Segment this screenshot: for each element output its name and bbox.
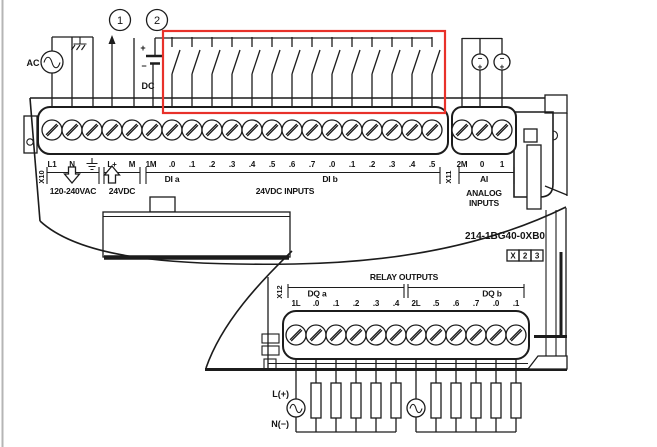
terminal-label: .3: [389, 160, 396, 169]
input-switch: [292, 37, 300, 107]
screw-terminal: [162, 120, 182, 140]
terminal-label: 1L: [292, 299, 301, 308]
up-arrow-icon: [109, 35, 116, 44]
relay-terminal-labels: 1L .0 .1 .2 .3 .4 2L .5 .6 .7 .0 .1: [292, 299, 520, 308]
terminal-label: .1: [189, 160, 196, 169]
neutral-supply-label: N(−): [271, 419, 289, 429]
terminal-label: .7: [473, 299, 480, 308]
sensor-caption: 24VDC: [109, 186, 135, 196]
terminal-label: .6: [453, 299, 460, 308]
input-switch: [232, 37, 240, 107]
inputs-caption: 24VDC INPUTS: [256, 186, 315, 196]
line-supply-label: L(+): [272, 389, 289, 399]
terminal-label: 2L: [412, 299, 421, 308]
screw-terminal: [306, 325, 326, 345]
terminal-label: 2M: [457, 160, 468, 169]
ac-label: AC: [27, 58, 40, 68]
terminal-label: .2: [209, 160, 216, 169]
screw-terminal: [202, 120, 222, 140]
terminal-label: .0: [493, 299, 500, 308]
screw-terminal: [182, 120, 202, 140]
screw-terminal: [446, 325, 466, 345]
order-code-box: X: [510, 252, 516, 261]
left-mount-ear: [24, 116, 37, 153]
screw-terminal: [486, 325, 506, 345]
screw-terminal: [62, 120, 82, 140]
connector-x11-label: X11: [444, 171, 453, 184]
terminal-label: .0: [329, 160, 336, 169]
input-switch: [212, 37, 220, 107]
screw-terminal: [262, 120, 282, 140]
dc-minus-label: −: [141, 61, 146, 71]
terminal-label: 1: [500, 160, 505, 169]
order-code-box: 3: [535, 252, 540, 261]
screw-terminal: [402, 120, 422, 140]
mains-supply-circuit: AC: [27, 37, 94, 107]
order-code-box: 2: [523, 252, 528, 261]
main-terminal-labels: L1 N L+ M 1M .0 .1 .2 .3 .4 .5 .6 .7 .0 …: [48, 158, 436, 170]
input-switch: [352, 37, 360, 107]
screw-terminal: [82, 120, 102, 140]
terminal-label: .1: [349, 160, 356, 169]
earth-ground-icon: [72, 37, 87, 50]
terminal-label: .3: [373, 299, 380, 308]
terminal-group-captions: X10 120-240VAC 24VDC DI a DI b 24VDC INP…: [37, 166, 514, 208]
terminal-label: .2: [369, 160, 376, 169]
screw-terminal: [452, 120, 472, 140]
terminal-label: .5: [433, 299, 440, 308]
screw-terminal: [506, 325, 526, 345]
left-ear-pin: [27, 139, 33, 145]
analog-caption-line2: INPUTS: [469, 198, 500, 208]
terminal-label: .6: [289, 160, 296, 169]
terminal-label: .4: [393, 299, 400, 308]
di-a-label: DI a: [165, 174, 180, 184]
right-foot: [528, 356, 567, 369]
terminal-label: 1M: [146, 160, 157, 169]
input-switch: [412, 37, 420, 107]
terminal-label: M: [129, 160, 136, 169]
terminal-label: .4: [409, 160, 416, 169]
analog-source-circuit: − + − +: [462, 38, 510, 107]
screw-terminal: [366, 325, 386, 345]
terminal-label: .0: [313, 299, 320, 308]
screw-terminal: [302, 120, 322, 140]
dc-source-circuit: + − DC: [140, 38, 432, 107]
terminal-label: .7: [309, 160, 316, 169]
part-number-area: 214-1BG40-0XB0 X 2 3: [465, 231, 545, 261]
screw-terminal: [362, 120, 382, 140]
mains-caption: 120-240VAC: [50, 186, 97, 196]
analog-terminal-labels: 2M 0 1: [457, 160, 505, 169]
screw-terminal: [386, 325, 406, 345]
screw-terminal: [382, 120, 402, 140]
screw-terminal: [42, 120, 62, 140]
screw-terminal: [426, 325, 446, 345]
relay-title: RELAY OUTPUTS: [370, 272, 439, 282]
ai-label: AI: [480, 174, 488, 184]
input-switch: [252, 37, 260, 107]
svg-text:2: 2: [154, 15, 160, 27]
screw-terminal: [282, 120, 302, 140]
terminal-label: .1: [513, 299, 520, 308]
dc-plus-label: +: [140, 43, 145, 53]
terminal-label: .1: [333, 299, 340, 308]
input-switch: [332, 37, 340, 107]
screw-terminal: [242, 120, 262, 140]
input-switch: [312, 37, 320, 107]
connector-x12-label: X12: [275, 285, 284, 298]
screw-terminal: [346, 325, 366, 345]
screw-terminal: [326, 325, 346, 345]
screw-terminal: [472, 120, 492, 140]
input-switch: [192, 37, 200, 107]
svg-text:1: 1: [117, 15, 123, 27]
plc-wiring-diagram: AC + − DC 1 2: [0, 0, 657, 447]
down-arrow-icon: [65, 167, 80, 183]
terminal-label: .2: [353, 299, 360, 308]
svg-text:+: +: [478, 63, 483, 72]
screw-terminal: [102, 120, 122, 140]
analog-terminal-screws: [452, 120, 512, 140]
terminal-label: 0: [480, 160, 485, 169]
screw-terminal: [406, 325, 426, 345]
input-switch: [432, 37, 440, 107]
screw-terminal: [142, 120, 162, 140]
screw-terminal: [342, 120, 362, 140]
input-switch: [272, 37, 280, 107]
part-number: 214-1BG40-0XB0: [465, 231, 545, 242]
input-switch: [172, 37, 180, 107]
connector-x10-label: X10: [37, 170, 46, 183]
dc-label: DC: [142, 81, 155, 91]
terminal-label: .5: [269, 160, 276, 169]
di-b-label: DI b: [322, 174, 337, 184]
screw-terminal: [286, 325, 306, 345]
ground-terminal-icon: [87, 158, 98, 170]
input-switch: [392, 37, 400, 107]
screw-terminal: [422, 120, 442, 140]
terminal-label: .0: [169, 160, 176, 169]
callout-2: 2: [147, 10, 168, 31]
sensor-supply-circuit: [109, 35, 135, 107]
din-latch-bar: [527, 145, 541, 209]
input-switch: [372, 37, 380, 107]
wiring-diagram-page: AC + − DC 1 2: [0, 0, 657, 447]
terminal-label: L1: [48, 160, 58, 169]
dq-b-label: DQ b: [482, 289, 502, 299]
screw-terminal: [222, 120, 242, 140]
terminal-label: .4: [249, 160, 256, 169]
screw-terminal: [466, 325, 486, 345]
relay-output-section: RELAY OUTPUTS X12 DQ a DQ b 1L .0 .1 .2 …: [275, 272, 529, 359]
analog-caption-line1: ANALOG: [466, 188, 502, 198]
terminal-label: .3: [229, 160, 236, 169]
svg-text:+: +: [500, 63, 505, 72]
screw-terminal: [122, 120, 142, 140]
input-switch-bank: [172, 37, 440, 107]
dq-a-label: DQ a: [307, 289, 327, 299]
callout-1: 1: [110, 10, 131, 31]
screw-terminal: [322, 120, 342, 140]
highlight-box: [163, 31, 445, 113]
terminal-label: .5: [429, 160, 436, 169]
terminal-door-panel: [103, 212, 290, 257]
door-tab: [150, 197, 175, 212]
screw-terminal: [492, 120, 512, 140]
